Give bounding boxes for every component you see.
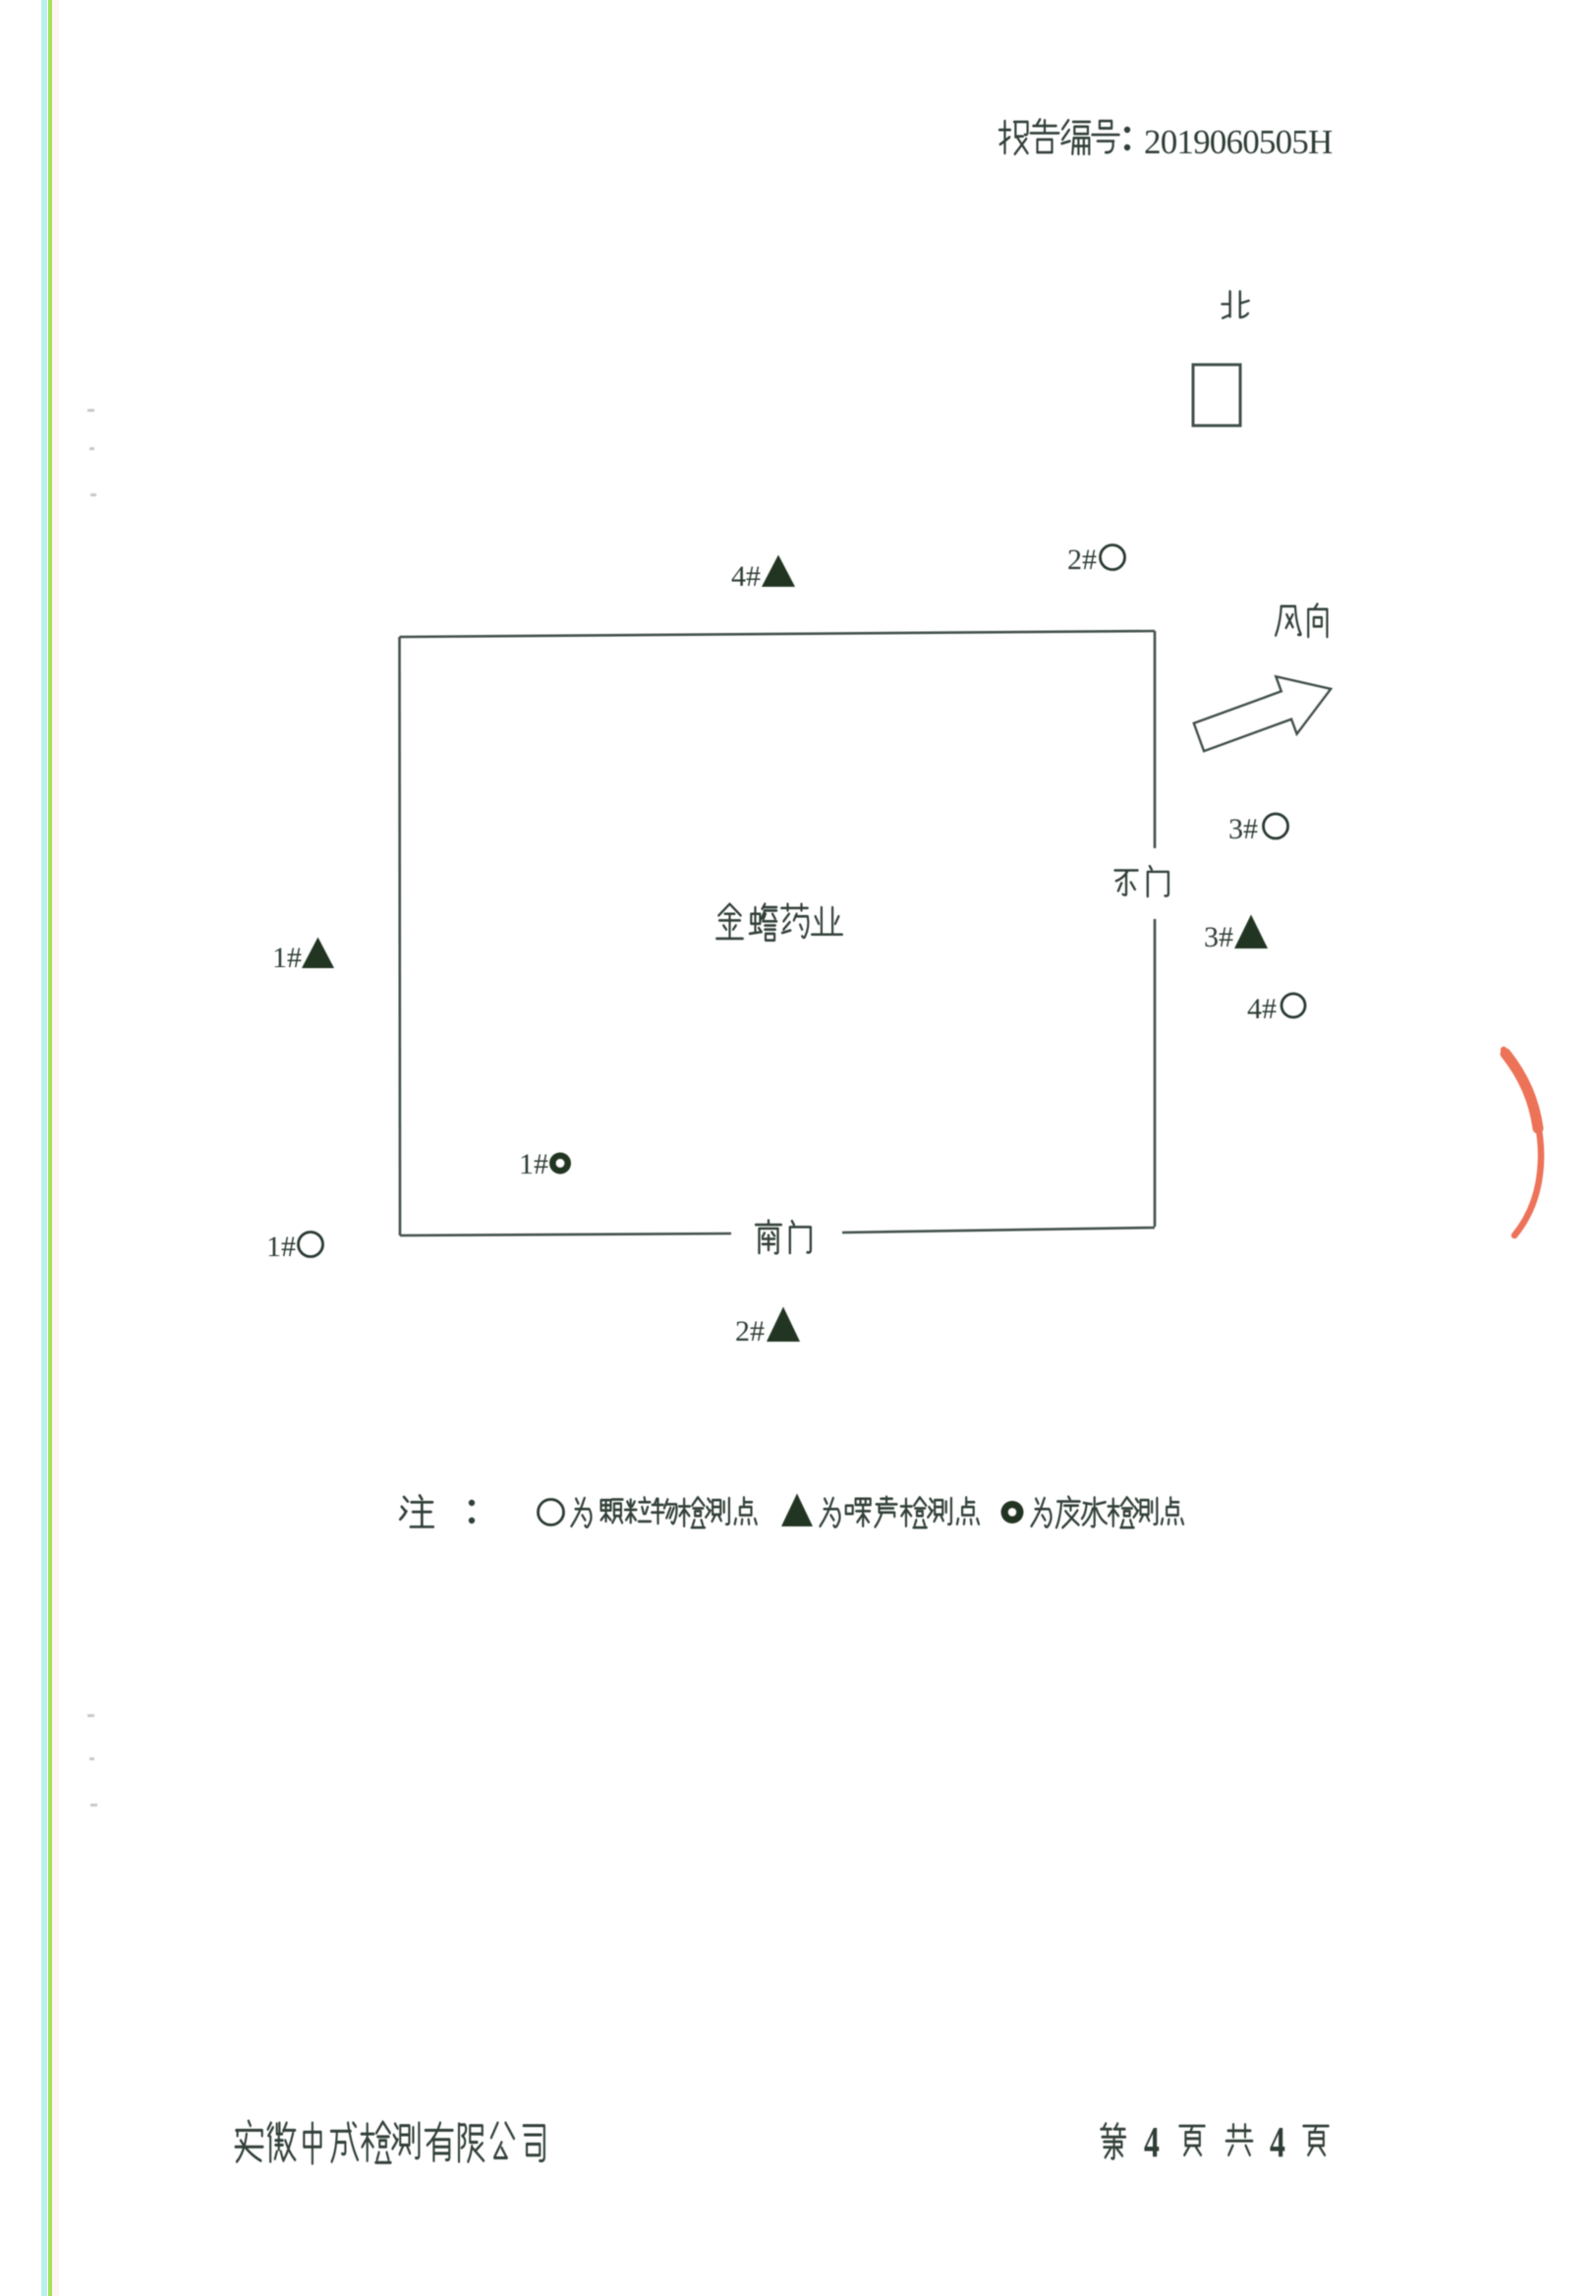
svg-text:1#: 1# (519, 1148, 548, 1180)
svg-text:4#: 4# (1247, 993, 1277, 1025)
svg-text:4#: 4# (731, 560, 761, 593)
svg-text:2019060505H: 2019060505H (1144, 123, 1333, 161)
svg-text:3#: 3# (1228, 813, 1258, 845)
svg-text:2#: 2# (735, 1315, 765, 1348)
svg-text:4: 4 (1270, 2119, 1285, 2166)
svg-text:1#: 1# (272, 942, 302, 974)
svg-text:2#: 2# (1067, 544, 1097, 576)
svg-text:3#: 3# (1204, 921, 1233, 953)
svg-text:4: 4 (1144, 2119, 1160, 2166)
svg-text:1#: 1# (266, 1231, 296, 1263)
